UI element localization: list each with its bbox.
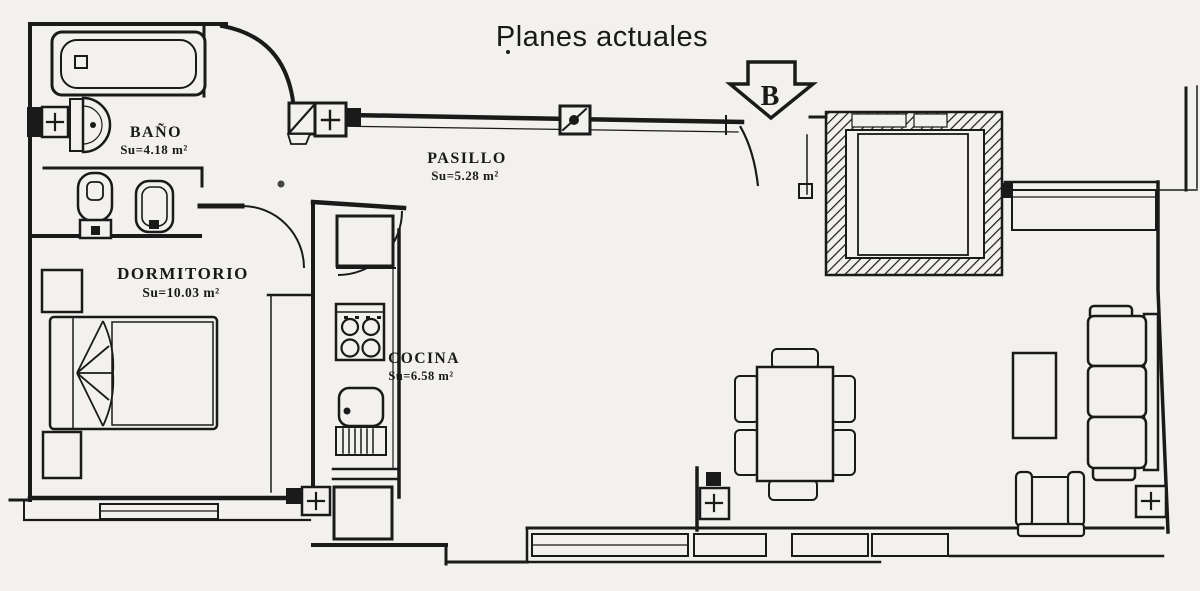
kitchen bbox=[286, 216, 398, 539]
wall-column-symbol bbox=[560, 106, 590, 134]
bedroom-window bbox=[100, 504, 218, 519]
bathtub bbox=[52, 32, 205, 95]
radiator-right bbox=[1136, 486, 1166, 517]
chair-right-2 bbox=[831, 430, 855, 475]
bidet bbox=[136, 181, 173, 232]
right-wall bbox=[1158, 182, 1168, 532]
svg-text:Su=10.03 m²: Su=10.03 m² bbox=[142, 285, 219, 300]
room-label-bano: BAÑO Su=4.18 m² bbox=[120, 122, 188, 157]
svg-text:DORMITORIO: DORMITORIO bbox=[117, 264, 249, 283]
room-label-dormitorio: DORMITORIO Su=10.03 m² bbox=[117, 264, 249, 300]
nightstand-top bbox=[42, 270, 82, 312]
radiator-bathroom bbox=[42, 107, 68, 137]
floor-plan-drawing: Planes actuales B BAÑO Su=4.18 m² PASILL… bbox=[0, 0, 1200, 591]
right-side-window bbox=[999, 183, 1156, 230]
living-windows bbox=[532, 534, 948, 556]
nightstand-bottom bbox=[43, 432, 81, 478]
armchair bbox=[1016, 472, 1084, 536]
svg-text:BAÑO: BAÑO bbox=[130, 122, 182, 141]
patio-shaft bbox=[799, 112, 1002, 275]
radiator-center bbox=[697, 468, 729, 530]
room-label-cocina: COCINA Su=6.58 m² bbox=[388, 350, 460, 383]
junction-boxes bbox=[288, 103, 361, 144]
coffee-table bbox=[1013, 353, 1056, 438]
fridge bbox=[337, 216, 395, 268]
plan-title: Planes actuales bbox=[496, 21, 708, 53]
svg-text:Su=6.58 m²: Su=6.58 m² bbox=[388, 369, 453, 383]
dining-table bbox=[757, 367, 833, 481]
bedroom bbox=[42, 270, 217, 478]
pasillo-top-wall bbox=[294, 114, 742, 122]
floor-plan-sheet: Planes actuales B BAÑO Su=4.18 m² PASILL… bbox=[0, 0, 1200, 591]
chair-left-2 bbox=[735, 430, 759, 475]
draining-board bbox=[336, 427, 386, 455]
counter-edge bbox=[333, 469, 398, 479]
double-bed bbox=[50, 317, 217, 429]
sofa bbox=[1088, 306, 1158, 480]
chair-bottom bbox=[769, 480, 817, 500]
dining-set bbox=[735, 349, 855, 500]
radiator-kitchen bbox=[286, 487, 330, 515]
kitchen-sink bbox=[339, 388, 383, 426]
arrow-letter: B bbox=[761, 81, 780, 112]
bedroom-door-arc bbox=[242, 206, 304, 268]
entrance-door-arc bbox=[740, 126, 758, 186]
stove bbox=[336, 304, 384, 360]
washbasin bbox=[70, 98, 110, 152]
svg-text:Su=5.28 m²: Su=5.28 m² bbox=[431, 168, 499, 183]
living-dining bbox=[697, 306, 1166, 536]
svg-text:PASILLO: PASILLO bbox=[427, 150, 507, 167]
svg-text:Su=4.18 m²: Su=4.18 m² bbox=[120, 142, 188, 157]
chair-right-1 bbox=[831, 376, 855, 422]
chair-left-1 bbox=[735, 376, 759, 422]
orientation-arrow: B bbox=[730, 62, 813, 118]
toilet bbox=[78, 173, 112, 238]
pasillo-symbols bbox=[288, 103, 590, 144]
washing-machine bbox=[334, 487, 392, 539]
svg-text:COCINA: COCINA bbox=[388, 350, 460, 367]
room-label-pasillo: PASILLO Su=5.28 m² bbox=[427, 150, 507, 183]
annotations: Planes actuales B BAÑO Su=4.18 m² PASILL… bbox=[117, 21, 813, 383]
